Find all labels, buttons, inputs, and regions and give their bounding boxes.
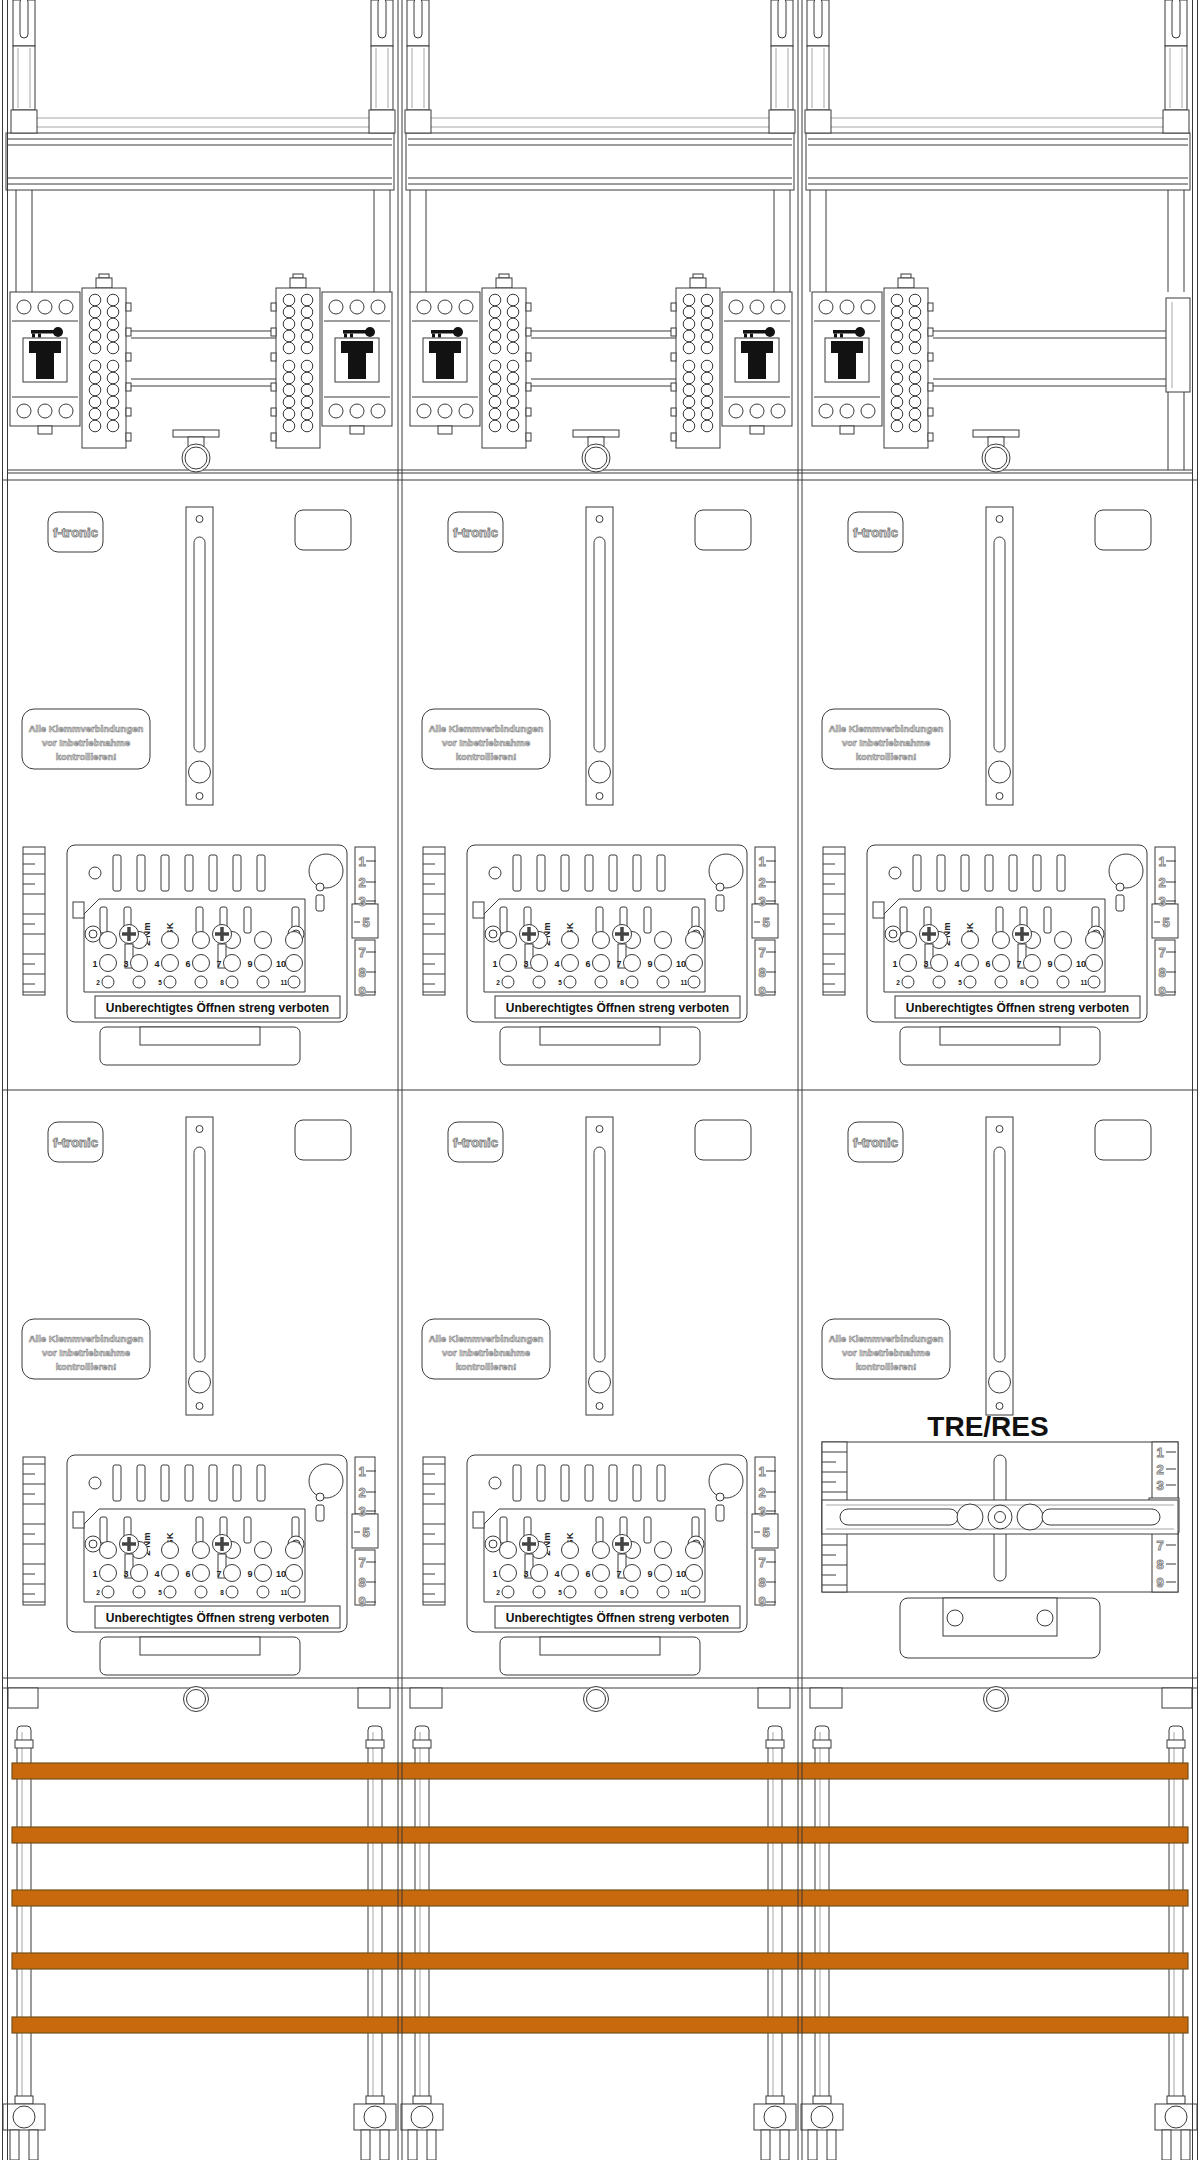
- din-rail-band: [406, 133, 794, 190]
- meter-cabinet-drawing: f-tronic Alle Klemmverbindungen vor Inbe…: [0, 0, 1200, 2160]
- din-rail-band: [6, 133, 394, 190]
- panel-1-1: [22, 507, 351, 805]
- svg-text:8: 8: [1156, 1557, 1163, 1572]
- svg-text:3: 3: [1156, 1478, 1163, 1493]
- panel-1-2: [422, 507, 751, 805]
- busbar: [12, 2017, 1188, 2033]
- reserve-field-label: TRE/RES: [927, 1411, 1048, 1442]
- busbar: [12, 1763, 1188, 1779]
- cable-gland: [184, 1687, 209, 1712]
- busbar: [12, 1827, 1188, 1843]
- lower-bracket: [900, 1598, 1100, 1658]
- top-mounting-section: [6, 0, 1192, 473]
- center-fixing: [988, 1505, 1012, 1529]
- busbars: [12, 1763, 1188, 2033]
- panel-2-1: [22, 1117, 351, 1415]
- cable-gland: [984, 1687, 1009, 1712]
- din-rail-band: [806, 133, 1190, 190]
- busbar: [12, 1890, 1188, 1906]
- panel-2-3-reserve: [822, 1117, 1151, 1415]
- svg-text:1: 1: [1156, 1445, 1163, 1460]
- busbar-section: [2, 1687, 1198, 2160]
- panel-2-2: [422, 1117, 751, 1415]
- busbar: [12, 1953, 1188, 1969]
- svg-text:7: 7: [1156, 1538, 1163, 1553]
- svg-text:2: 2: [1156, 1462, 1163, 1477]
- panel-fields: TRE/RES 1 2 3 5 7 8 9: [2, 480, 1198, 1678]
- wire-end-bracket: [1166, 298, 1190, 470]
- reserve-field: TRE/RES 1 2 3 5 7 8 9: [822, 1411, 1179, 1658]
- panel-1-3: [822, 507, 1151, 805]
- cabinet-svg: f-tronic Alle Klemmverbindungen vor Inbe…: [0, 0, 1200, 2160]
- svg-text:9: 9: [1156, 1575, 1163, 1590]
- cable-gland: [584, 1687, 609, 1712]
